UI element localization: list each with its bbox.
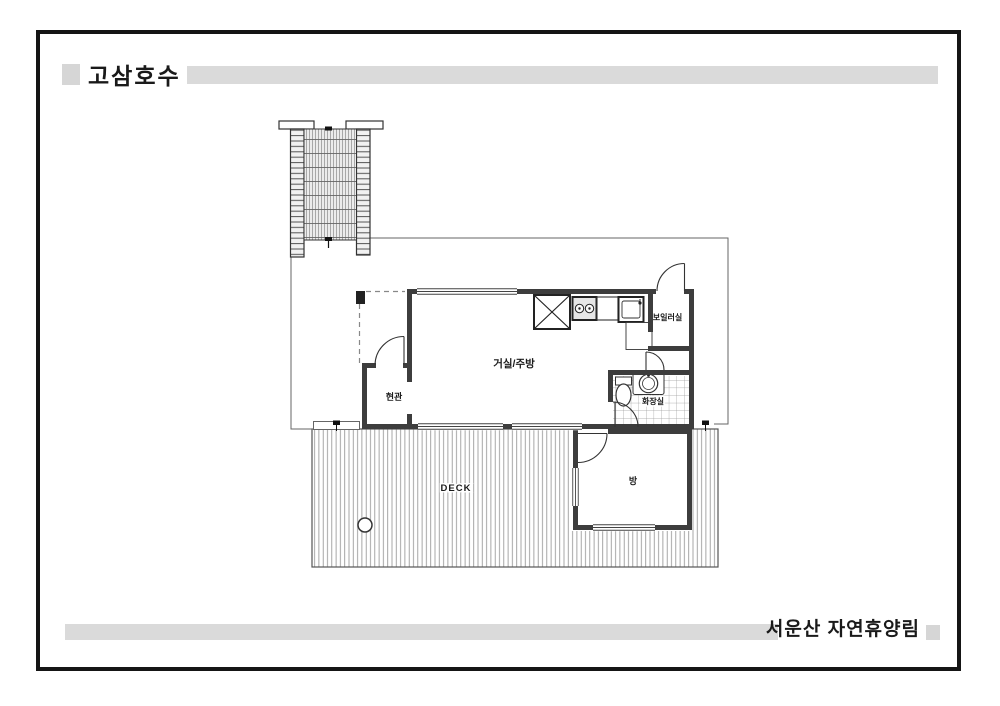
refrigerator-icon — [534, 295, 570, 329]
footer-title: 서운산 자연휴양림 — [560, 614, 920, 641]
kitchen-sink-icon — [619, 297, 644, 322]
deck-post-circle — [358, 518, 372, 532]
porch-column — [356, 291, 365, 304]
boiler-exterior-door-arc — [657, 264, 685, 292]
room-label-entrance: 현관 — [386, 391, 403, 402]
floor-plan: 거실/주방 현관 보일러실 화장실 방 DECK — [0, 0, 1000, 706]
kitchen-counter — [534, 295, 652, 350]
window-bedroom-bottom — [593, 524, 655, 532]
hall-door-arc — [646, 352, 664, 370]
stair-flight-right — [357, 129, 371, 255]
stair-ramp — [279, 121, 383, 257]
ramp-surface — [304, 129, 357, 240]
kitchen-cabinet — [597, 297, 618, 320]
window-living-bottom-right — [512, 423, 582, 431]
slide: 고삼호수 — [0, 0, 1000, 706]
room-label-bedroom: 방 — [629, 475, 638, 486]
stair-cap-left — [279, 121, 314, 129]
toilet-icon — [616, 377, 632, 406]
room-label-boiler: 보일러실 — [653, 312, 682, 322]
room-label-living-kitchen: 거실/주방 — [493, 357, 535, 370]
window-bedroom-left — [572, 468, 580, 506]
porch-outline — [356, 291, 405, 366]
entrance-door-arc — [375, 337, 404, 366]
window-living-top — [417, 288, 517, 296]
stair-flight-left — [291, 129, 305, 257]
stove-icon — [573, 297, 597, 320]
stair-cap-right — [346, 121, 383, 129]
washbasin-icon — [633, 374, 664, 395]
footer-accent-square — [926, 625, 940, 640]
deck-area — [312, 421, 718, 568]
window-living-bottom-left — [418, 423, 503, 431]
room-label-bathroom: 화장실 — [642, 396, 664, 406]
room-label-deck: DECK — [441, 483, 472, 494]
